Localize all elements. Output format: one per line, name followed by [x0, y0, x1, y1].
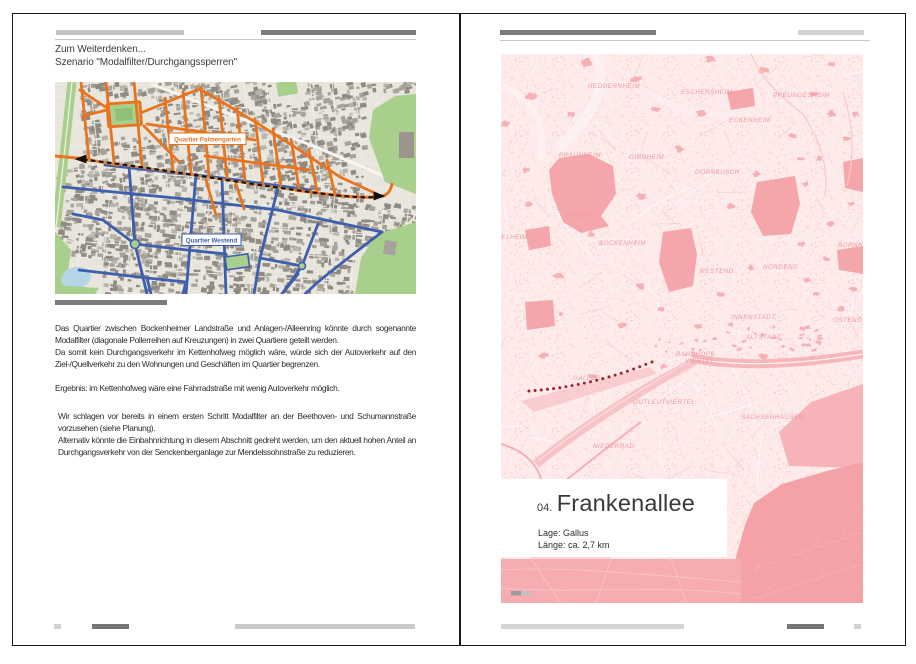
svg-text:DORNBUSCH: DORNBUSCH [695, 169, 740, 176]
svg-text:BAHNHOFS-: BAHNHOFS- [676, 351, 717, 358]
svg-text:Quartier Westend: Quartier Westend [186, 238, 238, 245]
svg-text:WESTEND: WESTEND [699, 268, 734, 275]
svg-text:ALTSTADT: ALTSTADT [745, 334, 782, 341]
svg-text:NIEDERRAD: NIEDERRAD [593, 443, 634, 450]
svg-text:ESCHERSHEIM: ESCHERSHEIM [681, 89, 733, 96]
svg-text:ECKENHEIM: ECKENHEIM [729, 117, 771, 124]
svg-text:PRAUNHEIM: PRAUNHEIM [559, 152, 601, 159]
svg-text:GUTLEUTVIERTEL: GUTLEUTVIERTEL [633, 399, 695, 406]
svg-text:SACHSENHAUSEN: SACHSENHAUSEN [741, 414, 804, 421]
svg-text:HEDDERNHEIM: HEDDERNHEIM [588, 83, 640, 90]
svg-text:GINNHEIM: GINNHEIM [629, 154, 665, 161]
svg-text:OSTEND: OSTEND [833, 317, 862, 324]
svg-text:VIERTEL: VIERTEL [685, 358, 715, 365]
svg-text:PREUNGESHEIM: PREUNGESHEIM [773, 92, 830, 99]
svg-text:BOCKENHEIM: BOCKENHEIM [599, 240, 646, 247]
svg-text:Quartier Palmengarten: Quartier Palmengarten [174, 136, 241, 143]
svg-text:INNENSTADT: INNENSTADT [731, 314, 776, 321]
svg-text:BORNHEIM: BORNHEIM [838, 242, 863, 249]
svg-text:HAUSEN: HAUSEN [565, 212, 594, 219]
svg-text:RÖDELHEIM: RÖDELHEIM [501, 234, 528, 241]
svg-text:NORDEND: NORDEND [763, 264, 798, 271]
